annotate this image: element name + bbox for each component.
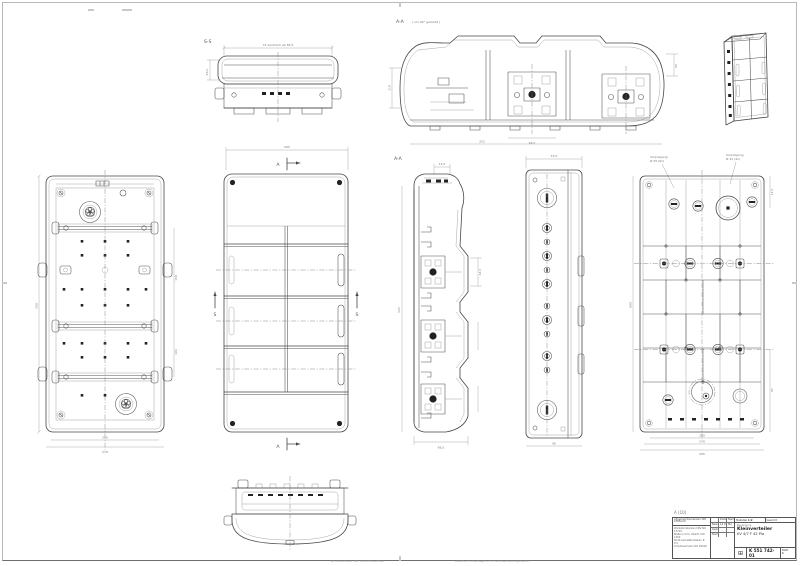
view-front-closed: 295 A S [208, 140, 364, 460]
fold-mark [399, 556, 401, 561]
corner-screw [57, 411, 65, 419]
print-mark [88, 9, 94, 11]
view-label: A-A [396, 19, 405, 25]
corner-screw [646, 420, 653, 427]
weight-label: Gewicht [766, 518, 796, 522]
bottom-slot-row [668, 418, 744, 421]
svg-text:A: A [276, 162, 280, 168]
svg-text:295: 295 [699, 452, 705, 456]
cable-gland [80, 202, 101, 223]
corner-screw [752, 182, 759, 189]
dimension-right: 44,5 [470, 258, 482, 412]
fold-mark [399, 2, 401, 7]
dimension-right: 150 104 [174, 228, 178, 377]
svg-text:110: 110 [388, 85, 392, 91]
dimension-left: 600 [629, 176, 634, 432]
svg-text:Ø 32 (4x): Ø 32 (4x) [726, 156, 740, 161]
side-body [526, 170, 582, 438]
print-mark [122, 9, 132, 11]
svg-text:295: 295 [284, 145, 290, 149]
svg-text:44,5: 44,5 [478, 269, 482, 276]
svg-text:104: 104 [174, 349, 178, 355]
section-arrow-top: A [276, 158, 300, 170]
svg-text:46,5: 46,5 [205, 69, 209, 76]
sig-row: Norm [711, 533, 734, 537]
svg-text:250: 250 [699, 434, 705, 438]
svg-text:65: 65 [770, 388, 774, 392]
section-arrow-right: S [355, 292, 358, 318]
part-title-cell: Benennung Kleinverteiler KV 4/7 F 42 Pla [735, 523, 795, 548]
company-logo-icon: ⊞ [735, 548, 747, 558]
view-label: S-S [204, 39, 212, 45]
sheet-number-cell: Blatt 1 [780, 548, 795, 558]
drawing-number: K 551 742-01 [747, 548, 780, 558]
svg-text:74 zentrisch ab 82,5: 74 zentrisch ab 82,5 [263, 43, 294, 47]
view-end-bottom [212, 474, 362, 552]
module [421, 320, 462, 352]
view-section-ss: S-S 74 zentrisch ab 82,5 46,5 [200, 34, 356, 130]
dimension-bottom: 44,5 252 [410, 138, 662, 145]
dimension-top: 14,5 [434, 162, 450, 174]
section-arrow-left: S [213, 292, 216, 318]
rail-profile [421, 227, 431, 418]
title-block-tolerances: Allgemeintoleranzen ISO 2768-mK Werkstüc… [673, 518, 711, 558]
svg-text:96: 96 [552, 442, 556, 446]
gland-boss-bottom [663, 379, 747, 405]
dimension-top: 53,5 [526, 154, 582, 168]
note-right: Vorprägung Ø 32 (4x) [726, 153, 744, 184]
svg-text:276: 276 [102, 450, 108, 454]
corner-screw [57, 189, 65, 197]
fold-mark [2, 282, 7, 284]
svg-text:Ø 25 (6x): Ø 25 (6x) [650, 158, 664, 163]
footer-note-left: Schutzvermerk ISO 16016 beachten [330, 559, 384, 563]
svg-text:560: 560 [35, 303, 39, 309]
part-type: KV 4/7 F 42 Pla [737, 532, 793, 536]
svg-text:S: S [356, 312, 359, 318]
svg-text:62: 62 [674, 64, 678, 68]
svg-text:86,5: 86,5 [438, 446, 445, 450]
gland-boss-top [716, 196, 740, 220]
svg-text:276: 276 [699, 440, 705, 444]
section-arrow-bottom: A [276, 438, 300, 450]
scale-value: 1:2 [748, 519, 753, 522]
screw-hole [120, 190, 126, 196]
dimension-left: 525 [397, 186, 402, 432]
title-block-main: Maßstab 1:2 Gewicht Benennung Kleinverte… [735, 518, 795, 558]
dimension-bottom: 96 [526, 442, 582, 447]
svg-text:14,5: 14,5 [439, 162, 446, 166]
view-interior-front: 560 150 104 250 276 [34, 166, 180, 456]
knockout [747, 197, 757, 207]
svg-text:53,5: 53,5 [551, 154, 558, 158]
corner-screw [752, 420, 759, 427]
internal-partitions [486, 50, 570, 120]
view-side-knockouts: 53,5 96 [510, 148, 598, 452]
svg-text:12,5: 12,5 [770, 189, 774, 196]
dimension-bottom: 250 276 295 [640, 434, 764, 457]
fold-mark [792, 282, 797, 284]
knockout [669, 199, 679, 209]
drawing-number-row: ⊞ K 551 742-01 Blatt 1 [735, 548, 795, 558]
cover-body [224, 174, 348, 432]
recessed-panel [236, 488, 344, 514]
view-isometric [704, 20, 780, 132]
internal-bracket [426, 78, 474, 110]
view-section-aa-vertical: A-A 14,5 [390, 150, 490, 450]
module [421, 384, 462, 414]
door-slots [229, 254, 344, 385]
svg-text:250: 250 [102, 436, 108, 440]
dimension-right: 62 [666, 54, 678, 76]
drawing-notes: Werkstückkanten DIN ISO 13715 Maße in mm… [673, 526, 710, 558]
svg-text:600: 600 [629, 302, 633, 308]
cover-lid [218, 56, 338, 84]
view-rear: Vorprägung Ø 25 (6x) Vorprägung Ø 32 (4x… [628, 150, 782, 456]
svg-text:S: S [214, 312, 217, 318]
corner-screw [145, 411, 153, 419]
dimension-left: 560 [35, 175, 41, 434]
view-note: ( um 90° gedreht ) [412, 20, 440, 24]
cable-gland [116, 394, 137, 415]
vent-slot [96, 181, 109, 186]
general-tolerance-header: Allgemeintoleranzen ISO 2768-mK [673, 518, 710, 526]
iso-front-face [732, 33, 768, 121]
corner-screw [145, 189, 153, 197]
dimension-right: 12,5 65 [770, 176, 774, 432]
zone-label: A (10) [674, 510, 686, 515]
module [421, 256, 462, 288]
drawing-sheet: S-S 74 zentrisch ab 82,5 46,5 [0, 0, 800, 566]
svg-text:525: 525 [397, 307, 401, 313]
view-section-aa-rotated: A-A ( um 90° gedreht ) [386, 10, 682, 150]
footer-note-right: Ausdruck unterliegt nicht dem Aenderungs… [455, 559, 529, 563]
view-label: A-A [394, 156, 403, 162]
svg-text:150: 150 [174, 275, 178, 281]
svg-text:252: 252 [479, 140, 485, 144]
dimension-bottom: 86,5 [414, 436, 468, 450]
title-block-signatures: Datum Name Bearb. 12.03. Mü Gepr. Norm [711, 518, 735, 558]
iso-top-face [724, 33, 766, 42]
svg-text:A: A [276, 444, 280, 450]
knockout [693, 201, 703, 211]
corner-screw [646, 182, 653, 189]
title-block: Allgemeintoleranzen ISO 2768-mK Werkstüc… [672, 517, 796, 559]
svg-text:44,5: 44,5 [529, 141, 536, 145]
note-left: Vorprägung Ø 25 (6x) [650, 155, 674, 188]
